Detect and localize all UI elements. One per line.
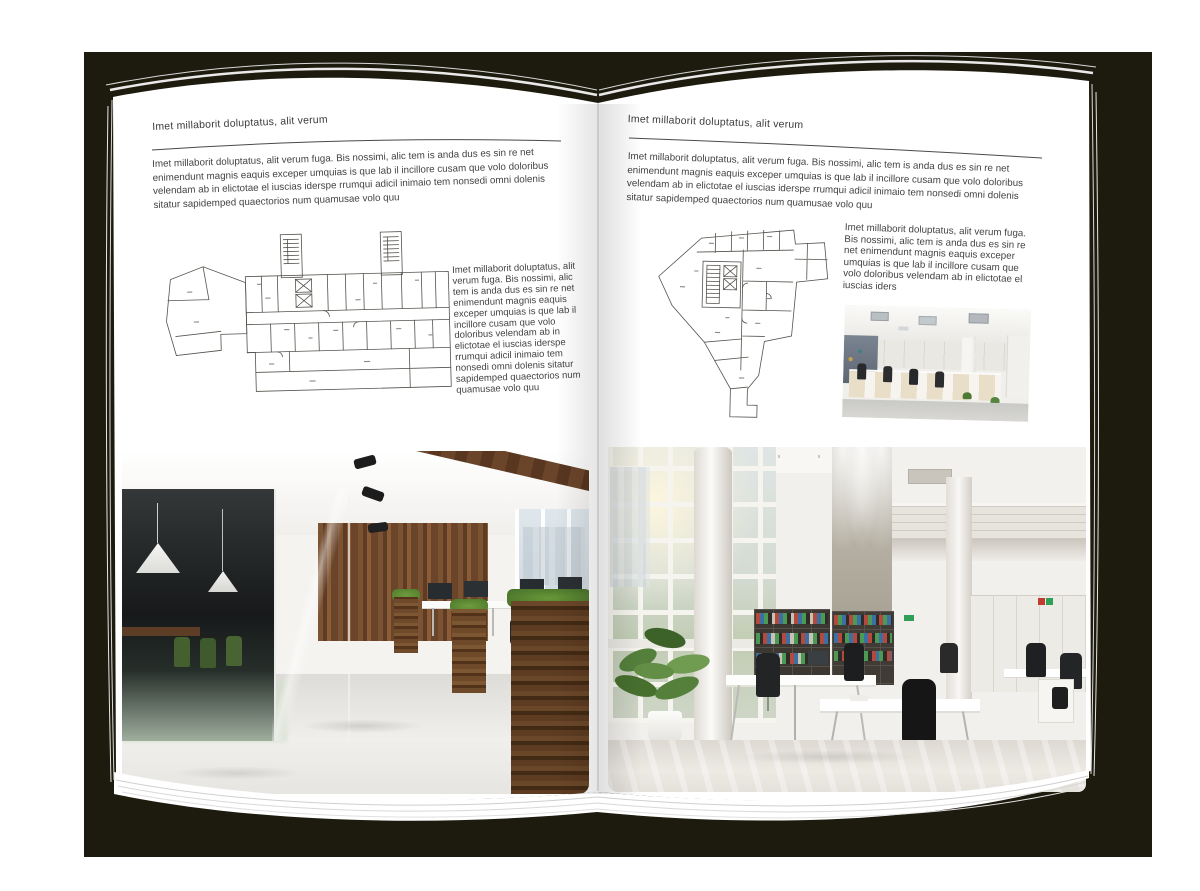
lounge-accent xyxy=(849,357,853,361)
floor-shadow xyxy=(738,750,918,764)
desk-cabinets xyxy=(849,369,1002,401)
magazine-spread-mockup: Imet millaborit doluptatus, alit verum I… xyxy=(0,0,1200,891)
desk-leg xyxy=(856,685,866,741)
plan-stair-hatch xyxy=(383,237,399,261)
binder-row xyxy=(756,613,828,624)
office-chair xyxy=(857,363,866,379)
plan-partitions xyxy=(271,320,434,352)
plan-elevator-cross xyxy=(723,266,736,290)
plan-corridor xyxy=(246,307,449,324)
office-chair xyxy=(935,371,944,387)
green-chair xyxy=(174,637,190,667)
left-floor-plan xyxy=(156,219,456,412)
lounge-accent xyxy=(858,349,862,353)
office-chair xyxy=(756,653,780,697)
plan-top-rooms xyxy=(697,229,793,254)
office-chair xyxy=(909,369,918,385)
desk-leg xyxy=(794,685,796,741)
office-chair xyxy=(1026,643,1046,677)
office-chair xyxy=(940,643,958,673)
plan-wing-rooms xyxy=(167,266,221,336)
concrete-feature-wall xyxy=(832,447,892,611)
right-page-side-text: Imet millaborit doluptatus, alit verum f… xyxy=(843,222,1041,298)
waste-bin xyxy=(1052,687,1068,709)
glass-reflection xyxy=(272,489,352,741)
ceiling-light xyxy=(871,312,889,321)
desk xyxy=(820,699,980,713)
plan-lower-rooms xyxy=(247,347,451,391)
small-office-photo xyxy=(842,305,1031,422)
monitor xyxy=(464,581,488,597)
ceiling-light xyxy=(898,326,908,330)
plan-stair-hatch xyxy=(706,269,720,297)
plan-outline xyxy=(245,271,451,391)
plan-door-arcs xyxy=(742,283,772,324)
large-plant xyxy=(614,625,714,749)
office-chair xyxy=(844,643,864,681)
meeting-table xyxy=(122,627,200,636)
left-page-side-text: Imet millaborit doluptatus, alit verum f… xyxy=(452,262,582,397)
plan-core xyxy=(702,261,741,308)
desk-leg xyxy=(432,608,434,636)
side-wall xyxy=(1006,335,1031,398)
plan-right-arm xyxy=(795,243,828,280)
binder-row xyxy=(834,633,892,643)
small-plant xyxy=(963,392,972,399)
plan-stair-hatch xyxy=(283,239,299,263)
wood-planter xyxy=(452,609,486,693)
office-chair xyxy=(902,679,936,743)
monitor xyxy=(428,583,452,599)
papers xyxy=(850,695,868,701)
desk-leg xyxy=(492,608,494,636)
city-skyline xyxy=(610,467,650,587)
binder-row xyxy=(756,633,828,644)
right-floor-plan xyxy=(644,216,834,420)
lamp-cord xyxy=(222,509,223,571)
exit-sign xyxy=(904,615,914,621)
plan-outline xyxy=(656,227,829,418)
floor-shadow xyxy=(302,719,422,733)
lamp-cord xyxy=(157,503,158,543)
office-chair xyxy=(883,366,892,382)
ceiling-light xyxy=(969,313,989,324)
first-aid-sign xyxy=(1038,598,1045,605)
plan-elevator-cross xyxy=(295,279,312,307)
exit-sign xyxy=(1046,598,1053,605)
left-office-photo xyxy=(122,451,589,794)
wood-planter xyxy=(511,601,589,794)
plan-wing xyxy=(165,266,247,356)
binder-row xyxy=(834,615,892,625)
wood-planter xyxy=(394,597,418,653)
plant-pot xyxy=(648,711,682,743)
green-chair xyxy=(200,638,216,668)
floor-shadow xyxy=(172,766,302,780)
glass-frame xyxy=(274,489,276,741)
balcony-railing xyxy=(876,503,1086,542)
green-chair xyxy=(226,636,242,666)
glass-meeting-room xyxy=(122,489,274,741)
balcony-underside xyxy=(860,539,1086,561)
chair-stem xyxy=(767,697,769,711)
stone-floor xyxy=(608,740,1086,792)
ceiling-light xyxy=(919,316,937,325)
glass-frame xyxy=(348,495,350,741)
plan-rooms xyxy=(741,250,794,371)
monitor xyxy=(808,651,828,665)
right-office-photo xyxy=(608,447,1086,792)
